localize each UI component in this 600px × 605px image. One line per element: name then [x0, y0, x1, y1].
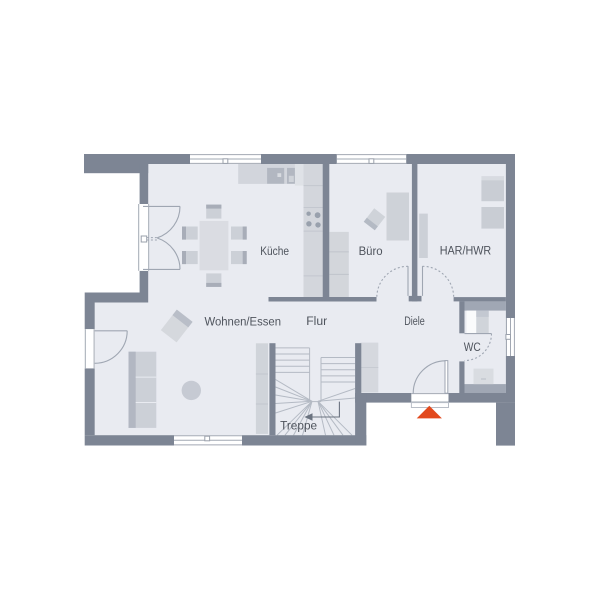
svg-text:Diele: Diele — [404, 314, 425, 328]
svg-text:WC: WC — [464, 340, 481, 354]
svg-text:Wohnen/Essen: Wohnen/Essen — [205, 315, 282, 329]
svg-text:Büro: Büro — [359, 244, 383, 258]
svg-text:Treppe: Treppe — [280, 418, 317, 432]
svg-text:Flur: Flur — [306, 314, 327, 328]
svg-text:Küche: Küche — [260, 244, 289, 258]
svg-text:HAR/HWR: HAR/HWR — [440, 244, 492, 258]
